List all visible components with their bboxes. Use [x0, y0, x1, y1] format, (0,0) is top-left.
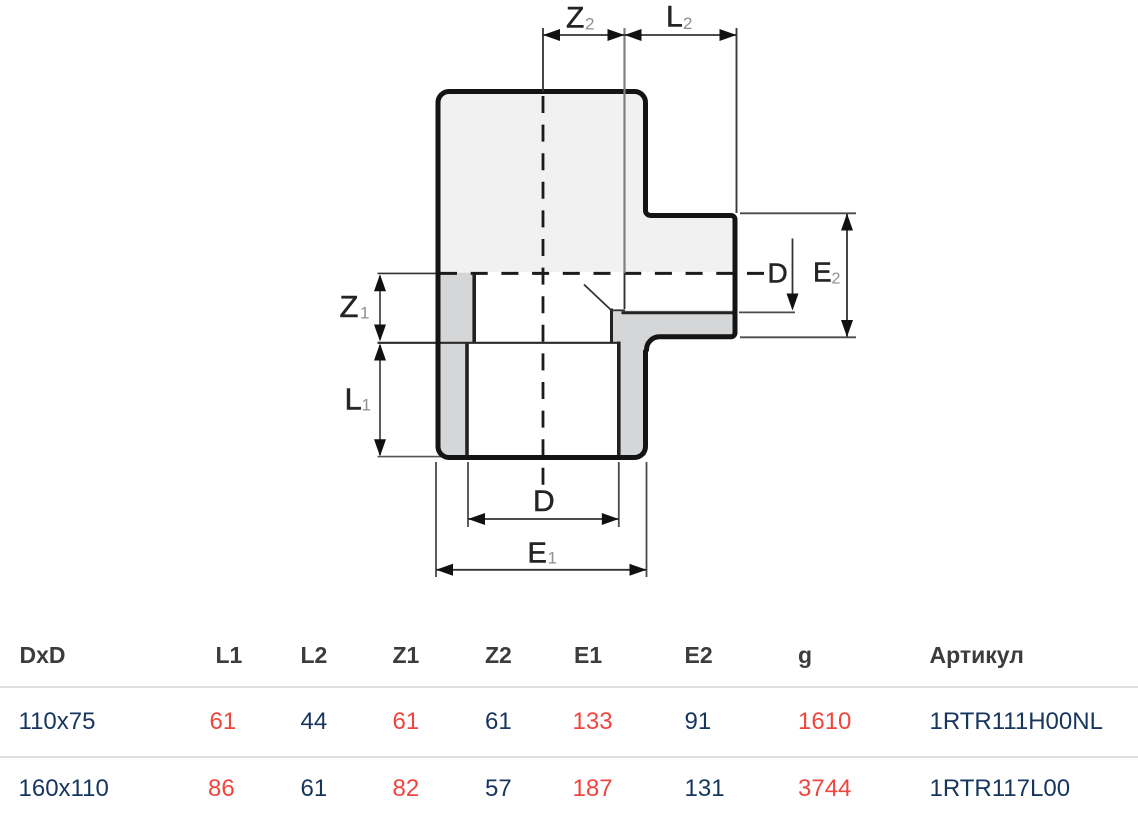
svg-text:L: L: [345, 382, 362, 417]
svg-text:Z: Z: [340, 289, 359, 324]
svg-text:1: 1: [362, 396, 371, 415]
svg-text:1: 1: [360, 304, 369, 323]
svg-text:D: D: [533, 485, 555, 518]
svg-text:E: E: [528, 538, 547, 570]
svg-text:E: E: [813, 257, 832, 288]
svg-text:D: D: [768, 258, 788, 289]
svg-text:1: 1: [548, 549, 557, 568]
svg-text:2: 2: [585, 15, 594, 34]
svg-text:Z: Z: [566, 2, 584, 35]
svg-text:2: 2: [832, 271, 841, 288]
svg-text:2: 2: [683, 14, 692, 33]
svg-text:L: L: [666, 1, 683, 34]
